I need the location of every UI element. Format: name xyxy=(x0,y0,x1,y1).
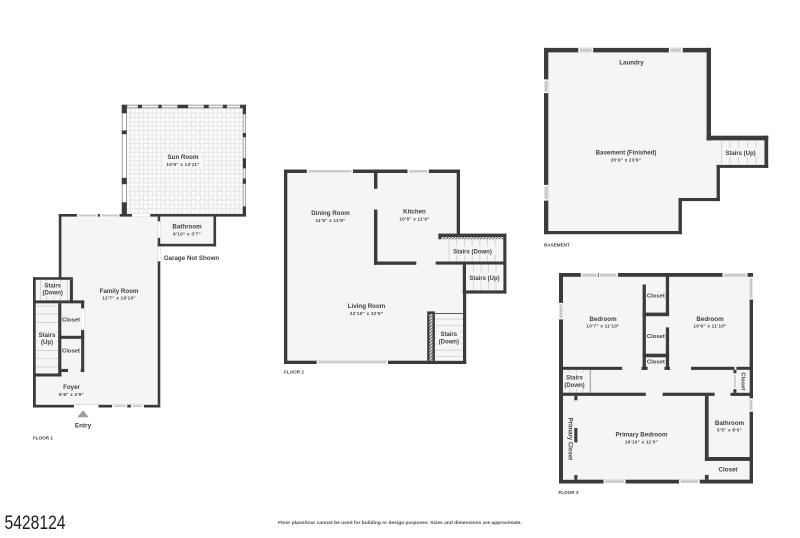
svg-text:10’5" x 11’9": 10’5" x 11’9" xyxy=(399,216,429,221)
svg-text:Closet: Closet xyxy=(62,318,80,324)
svg-text:(Down): (Down) xyxy=(43,291,63,297)
svg-text:Foyer: Foyer xyxy=(63,384,80,391)
svg-text:BASEMENT: BASEMENT xyxy=(544,243,570,248)
svg-text:5’5" x 8’0": 5’5" x 8’0" xyxy=(717,428,742,433)
svg-text:Family Room: Family Room xyxy=(100,288,139,295)
svg-text:Primary Bedroom: Primary Bedroom xyxy=(616,432,668,439)
svg-text:Stairs: Stairs xyxy=(440,332,457,338)
svg-text:Entry: Entry xyxy=(75,423,92,430)
svg-text:Bedroom: Bedroom xyxy=(589,316,617,323)
svg-text:Stairs: Stairs xyxy=(566,375,583,381)
svg-text:Closet: Closet xyxy=(62,349,80,355)
svg-text:FLOOR 3: FLOOR 3 xyxy=(559,490,579,495)
svg-text:Garage Not Shown: Garage Not Shown xyxy=(164,255,220,262)
svg-text:8’8" x 3’9": 8’8" x 3’9" xyxy=(59,392,84,397)
svg-text:Kitchen: Kitchen xyxy=(403,209,426,216)
svg-text:Floor plans/tour cannot be use: Floor plans/tour cannot be used for buil… xyxy=(278,520,522,526)
svg-text:Stairs (Up): Stairs (Up) xyxy=(469,276,499,282)
svg-text:6’10" x 3’7": 6’10" x 3’7" xyxy=(173,231,201,236)
svg-text:12’7" x 19’10": 12’7" x 19’10" xyxy=(102,296,135,301)
svg-text:11’5" x 11’9": 11’5" x 11’9" xyxy=(315,218,345,223)
svg-text:Stairs: Stairs xyxy=(44,284,61,290)
svg-text:Bathroom: Bathroom xyxy=(715,420,745,427)
svg-text:20’9" x 23’6": 20’9" x 23’6" xyxy=(611,157,642,162)
svg-text:Dining Room: Dining Room xyxy=(311,210,350,217)
svg-text:Closet: Closet xyxy=(719,467,738,474)
svg-text:Laundry: Laundry xyxy=(619,60,644,67)
svg-text:22’10" x 12’5": 22’10" x 12’5" xyxy=(350,311,383,316)
svg-text:Closet: Closet xyxy=(647,294,665,300)
svg-text:FLOOR 2: FLOOR 2 xyxy=(284,369,304,374)
svg-text:(Down): (Down) xyxy=(439,340,459,346)
svg-text:Stairs (Up): Stairs (Up) xyxy=(725,151,755,157)
svg-text:16’10" x 11’0": 16’10" x 11’0" xyxy=(625,439,658,444)
svg-text:15’5" x 13’11": 15’5" x 13’11" xyxy=(166,162,199,167)
svg-text:Closet: Closet xyxy=(740,372,746,390)
svg-text:Bedroom: Bedroom xyxy=(696,316,724,323)
svg-text:FLOOR 1: FLOOR 1 xyxy=(33,435,53,440)
svg-text:Basement (Finished): Basement (Finished) xyxy=(596,150,657,157)
svg-text:Primary Closet: Primary Closet xyxy=(566,418,572,460)
svg-text:5428124: 5428124 xyxy=(5,511,66,533)
svg-text:Bathroom: Bathroom xyxy=(172,224,202,231)
svg-text:Closet: Closet xyxy=(647,334,665,340)
svg-text:(Down): (Down) xyxy=(564,383,584,389)
svg-text:Closet: Closet xyxy=(647,359,665,365)
svg-text:Living Room: Living Room xyxy=(348,303,386,310)
svg-text:(Up): (Up) xyxy=(41,340,53,346)
svg-text:10’7" x 11’10": 10’7" x 11’10" xyxy=(586,323,619,328)
svg-text:10’6" x 11’10": 10’6" x 11’10" xyxy=(693,323,726,328)
svg-text:Stairs: Stairs xyxy=(39,333,56,339)
svg-text:Stairs (Down): Stairs (Down) xyxy=(453,250,492,256)
svg-text:Sun Room: Sun Room xyxy=(168,154,199,161)
